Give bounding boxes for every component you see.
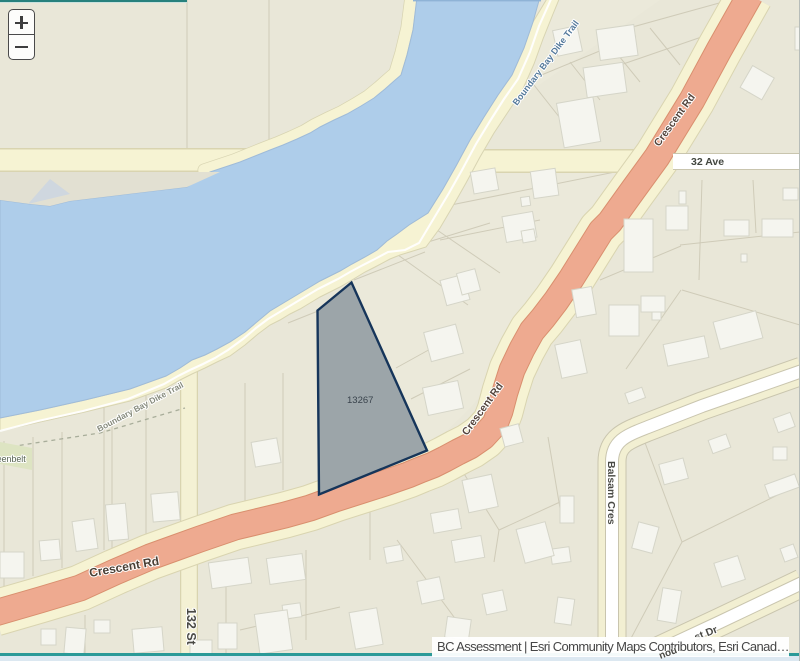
svg-text:13267: 13267 [347, 395, 373, 406]
svg-text:Balsam Cres: Balsam Cres [605, 461, 617, 525]
svg-text:32 Ave: 32 Ave [691, 156, 724, 168]
svg-text:132 St: 132 St [184, 608, 198, 646]
svg-text:Greenbelt: Greenbelt [0, 454, 26, 464]
